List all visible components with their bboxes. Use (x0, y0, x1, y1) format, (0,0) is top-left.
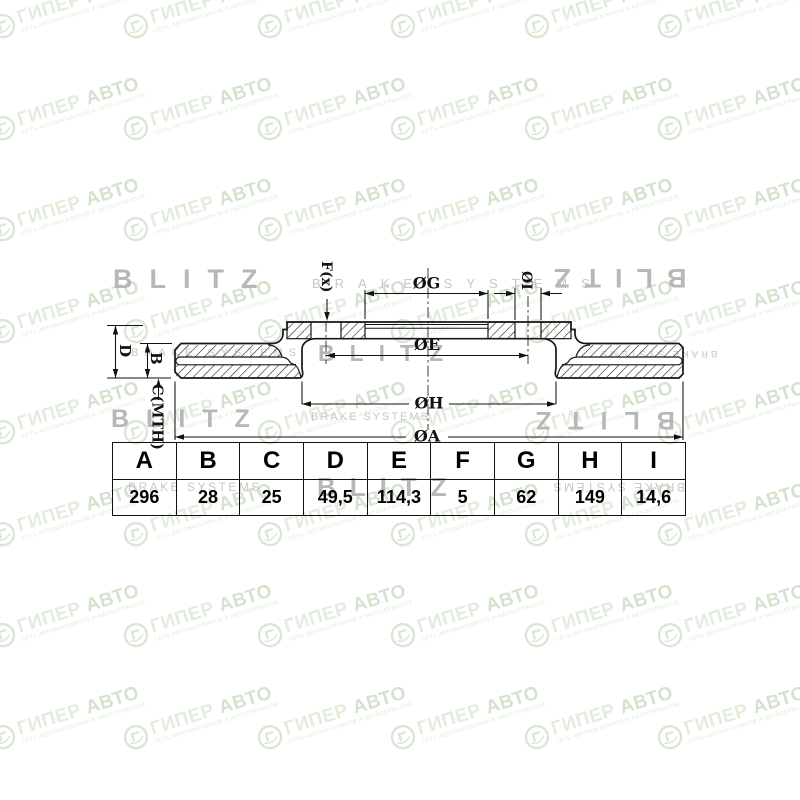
dimension-diameter-a: ØA (175, 382, 683, 446)
label-diameter-i: ØI (518, 271, 534, 290)
dim-value-cell: 114,3 (367, 480, 431, 516)
dim-value-cell: 62 (494, 480, 558, 516)
dim-header-cell: F (431, 443, 495, 480)
dimension-table: A B C D E F G H I 296 28 25 49,5 114,3 5… (112, 442, 686, 516)
dim-header-cell: H (558, 443, 622, 480)
dim-value-cell: 5 (431, 480, 495, 516)
label-c-mth: C(MTH) (149, 384, 166, 450)
dimension-diameter-g: ØG (365, 274, 488, 320)
dimension-table-header-row: A B C D E F G H I (113, 443, 686, 480)
dim-header-cell: G (494, 443, 558, 480)
dimension-diameter-i: ØI (494, 271, 562, 320)
label-b: B (147, 352, 165, 365)
dim-value-cell: 28 (176, 480, 240, 516)
dim-value-cell: 14,6 (622, 480, 686, 516)
dim-value-cell: 149 (558, 480, 622, 516)
dim-value-cell: 296 (113, 480, 177, 516)
label-f-x: F(x) (318, 261, 334, 293)
dim-header-cell: A (113, 443, 177, 480)
label-diameter-g: ØG (413, 274, 441, 293)
dim-value-cell: 25 (240, 480, 304, 516)
dimension-thickness-b: B (140, 344, 172, 379)
dim-header-cell: I (622, 443, 686, 480)
dim-header-cell: D (303, 443, 367, 480)
dimension-table-value-row: 296 28 25 49,5 114,3 5 62 149 14,6 (113, 480, 686, 516)
dim-header-cell: E (367, 443, 431, 480)
dim-header-cell: B (176, 443, 240, 480)
center-bore-recess (365, 325, 488, 329)
dim-value-cell: 49,5 (303, 480, 367, 516)
label-d: D (116, 344, 134, 357)
dimension-diameter-h: ØH (302, 382, 556, 413)
product-diagram-page: { "dimension_table": { "headers": ["A", … (0, 0, 800, 800)
label-diameter-h: ØH (414, 394, 443, 413)
dim-header-cell: C (240, 443, 304, 480)
brake-disc-technical-drawing: ØG ØI F(x) ØE ØH ØA (0, 0, 800, 800)
dimension-bolt-holes-fx: F(x) (318, 261, 334, 321)
label-diameter-e: ØE (414, 335, 440, 354)
dimension-min-thickness-c: C(MTH) (149, 379, 166, 450)
